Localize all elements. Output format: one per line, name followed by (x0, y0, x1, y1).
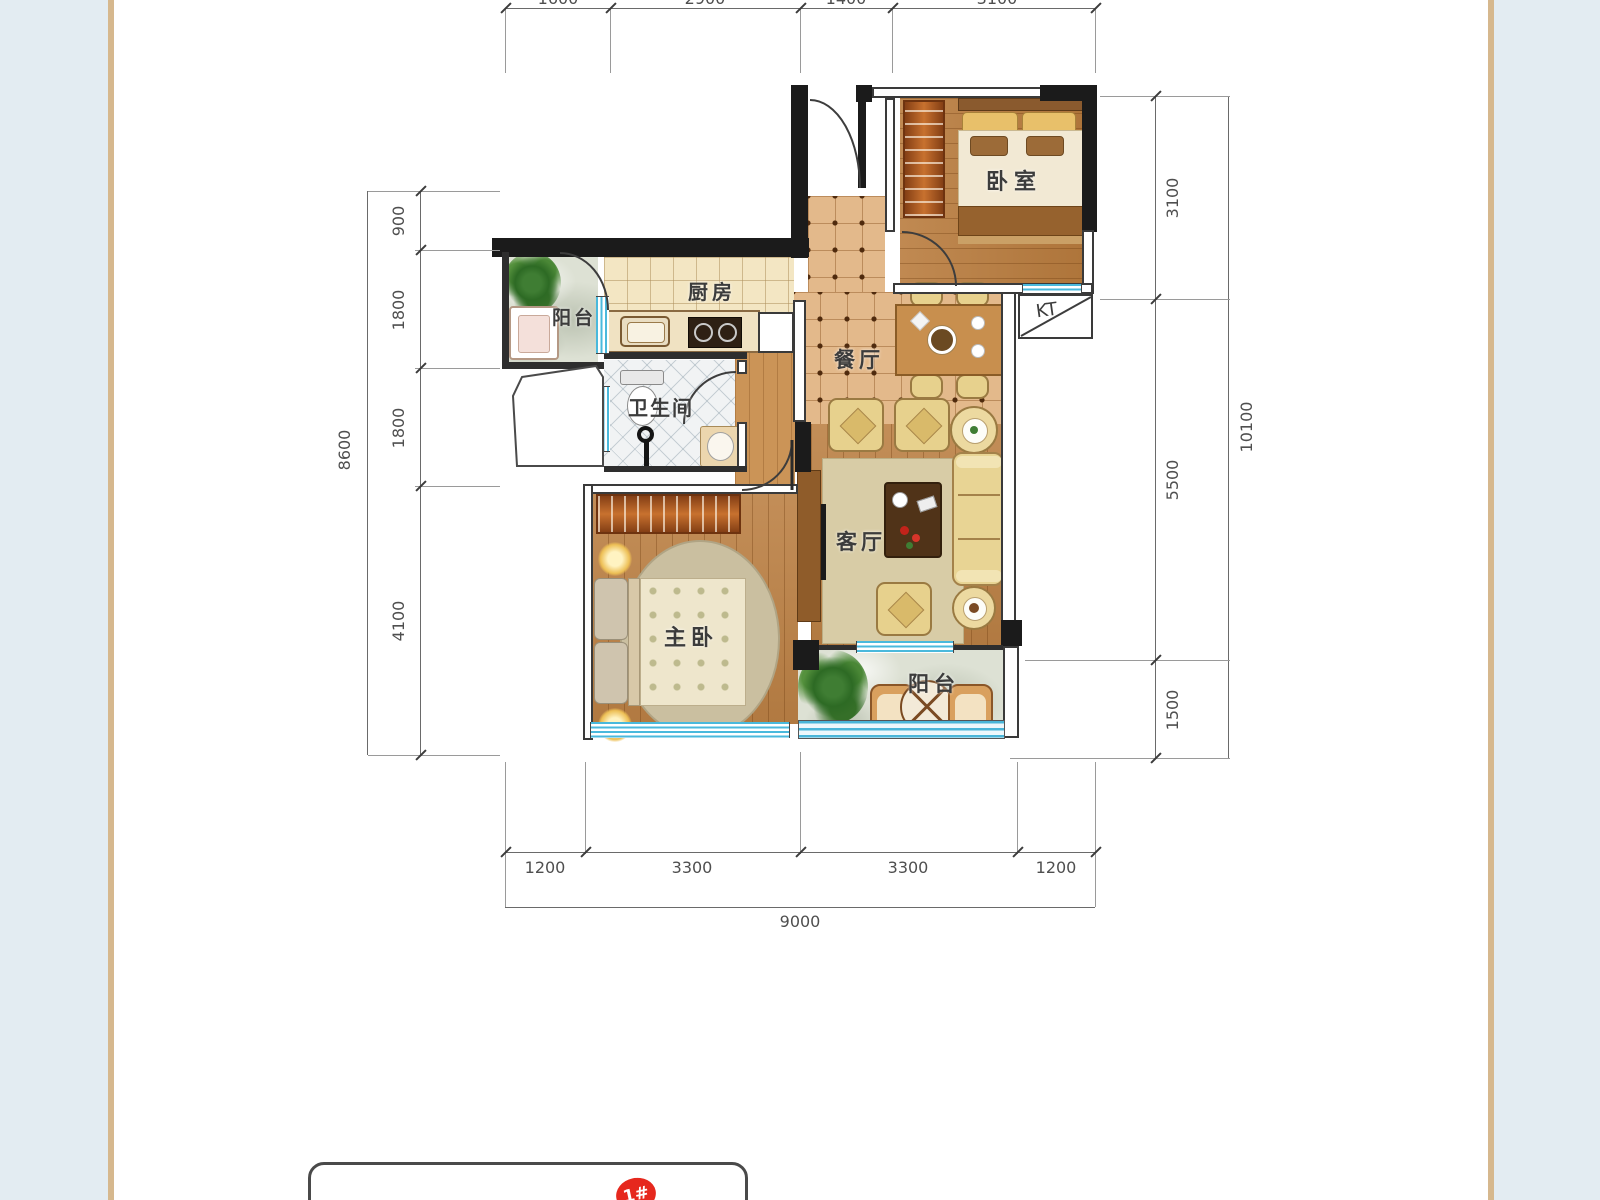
door-arc (810, 100, 860, 188)
kitchen-sink (620, 316, 670, 347)
dim-label: 1600 (536, 0, 580, 8)
basin (707, 432, 734, 461)
tv (821, 504, 826, 580)
wall (583, 484, 798, 494)
room-label-bathroom: 卫生间 (628, 392, 694, 421)
wall (793, 640, 819, 670)
room-label-balcony-top: 阳台 (552, 303, 596, 330)
bedroom-wardrobe (903, 100, 945, 218)
dim-label: 3300 (886, 858, 930, 877)
wall (1001, 620, 1022, 646)
window (1022, 284, 1082, 293)
dim-label: 1400 (824, 0, 868, 8)
window (590, 722, 790, 738)
dim-label: 1200 (1034, 858, 1078, 877)
room-label-dining: 餐厅 (834, 344, 884, 374)
window (596, 296, 609, 354)
room-label-living: 客厅 (836, 526, 886, 556)
dim-label: 1500 (1163, 684, 1181, 736)
armchair (828, 398, 884, 452)
dining-table (895, 304, 1005, 376)
wall (793, 300, 806, 422)
sofa (952, 452, 1004, 586)
wall (791, 85, 808, 258)
dim-label: 5500 (1163, 454, 1181, 506)
coffee-table (884, 482, 942, 558)
dim-label: 3100 (1163, 172, 1181, 224)
armchair (876, 582, 932, 636)
room-label-balcony-bottom: 阳台 (908, 668, 960, 698)
left-background-strip (0, 0, 108, 1200)
dining-chair (956, 374, 989, 399)
dim-label: 8600 (335, 424, 353, 476)
wall (737, 422, 747, 472)
bathroom-vanity (700, 426, 740, 467)
window (856, 641, 954, 653)
right-frame-border (1488, 0, 1494, 1200)
wall (604, 466, 747, 472)
door-leaf (858, 100, 866, 188)
unit-card[interactable] (308, 1162, 748, 1200)
dim-label: 1800 (389, 402, 407, 454)
left-frame-border (108, 0, 114, 1200)
nightstand-lamp (598, 542, 632, 576)
dim-label: 900 (389, 195, 407, 247)
dining-chair (910, 374, 943, 399)
right-background-strip (1494, 0, 1600, 1200)
wall (583, 484, 593, 740)
toilet (620, 370, 664, 385)
side-table (952, 586, 996, 630)
room-label-kt: KT (1035, 299, 1059, 323)
wall (492, 238, 809, 257)
dim-label: 2900 (683, 0, 727, 8)
wall (795, 422, 811, 472)
wall (502, 252, 509, 369)
balcony-railing (798, 720, 1005, 739)
pillow (1026, 136, 1064, 156)
dim-label: 1200 (523, 858, 567, 877)
void-area (513, 366, 603, 466)
room-label-master: 主卧 (664, 620, 718, 652)
dim-label: 3100 (975, 0, 1019, 8)
stove (688, 317, 742, 348)
tv-cabinet (797, 470, 821, 622)
window (598, 386, 610, 452)
dim-label: 1800 (389, 284, 407, 336)
wall (737, 360, 747, 374)
fridge (758, 312, 794, 353)
wall (1003, 646, 1019, 738)
dim-label: 10100 (1237, 401, 1255, 453)
wall (604, 352, 747, 359)
dim-label: 4100 (389, 595, 407, 647)
wall (885, 98, 895, 232)
pillow (970, 136, 1008, 156)
wall (1001, 292, 1016, 624)
room-label-bedroom: 卧室 (986, 164, 1042, 196)
dim-label: 9000 (778, 912, 822, 931)
wall (872, 87, 1042, 98)
room-label-kitchen: 厨房 (688, 276, 736, 305)
wall (1082, 85, 1097, 232)
master-wardrobe (596, 494, 741, 534)
wall (502, 362, 604, 369)
armchair (894, 398, 950, 452)
floor-plan-page: 卧室 厨房 阳台 卫生间 餐厅 客厅 主卧 阳台 KT 1600 2900 14… (0, 0, 1600, 1200)
dim-label: 3300 (670, 858, 714, 877)
entry-hall-floor (808, 196, 885, 294)
side-table (950, 406, 998, 454)
